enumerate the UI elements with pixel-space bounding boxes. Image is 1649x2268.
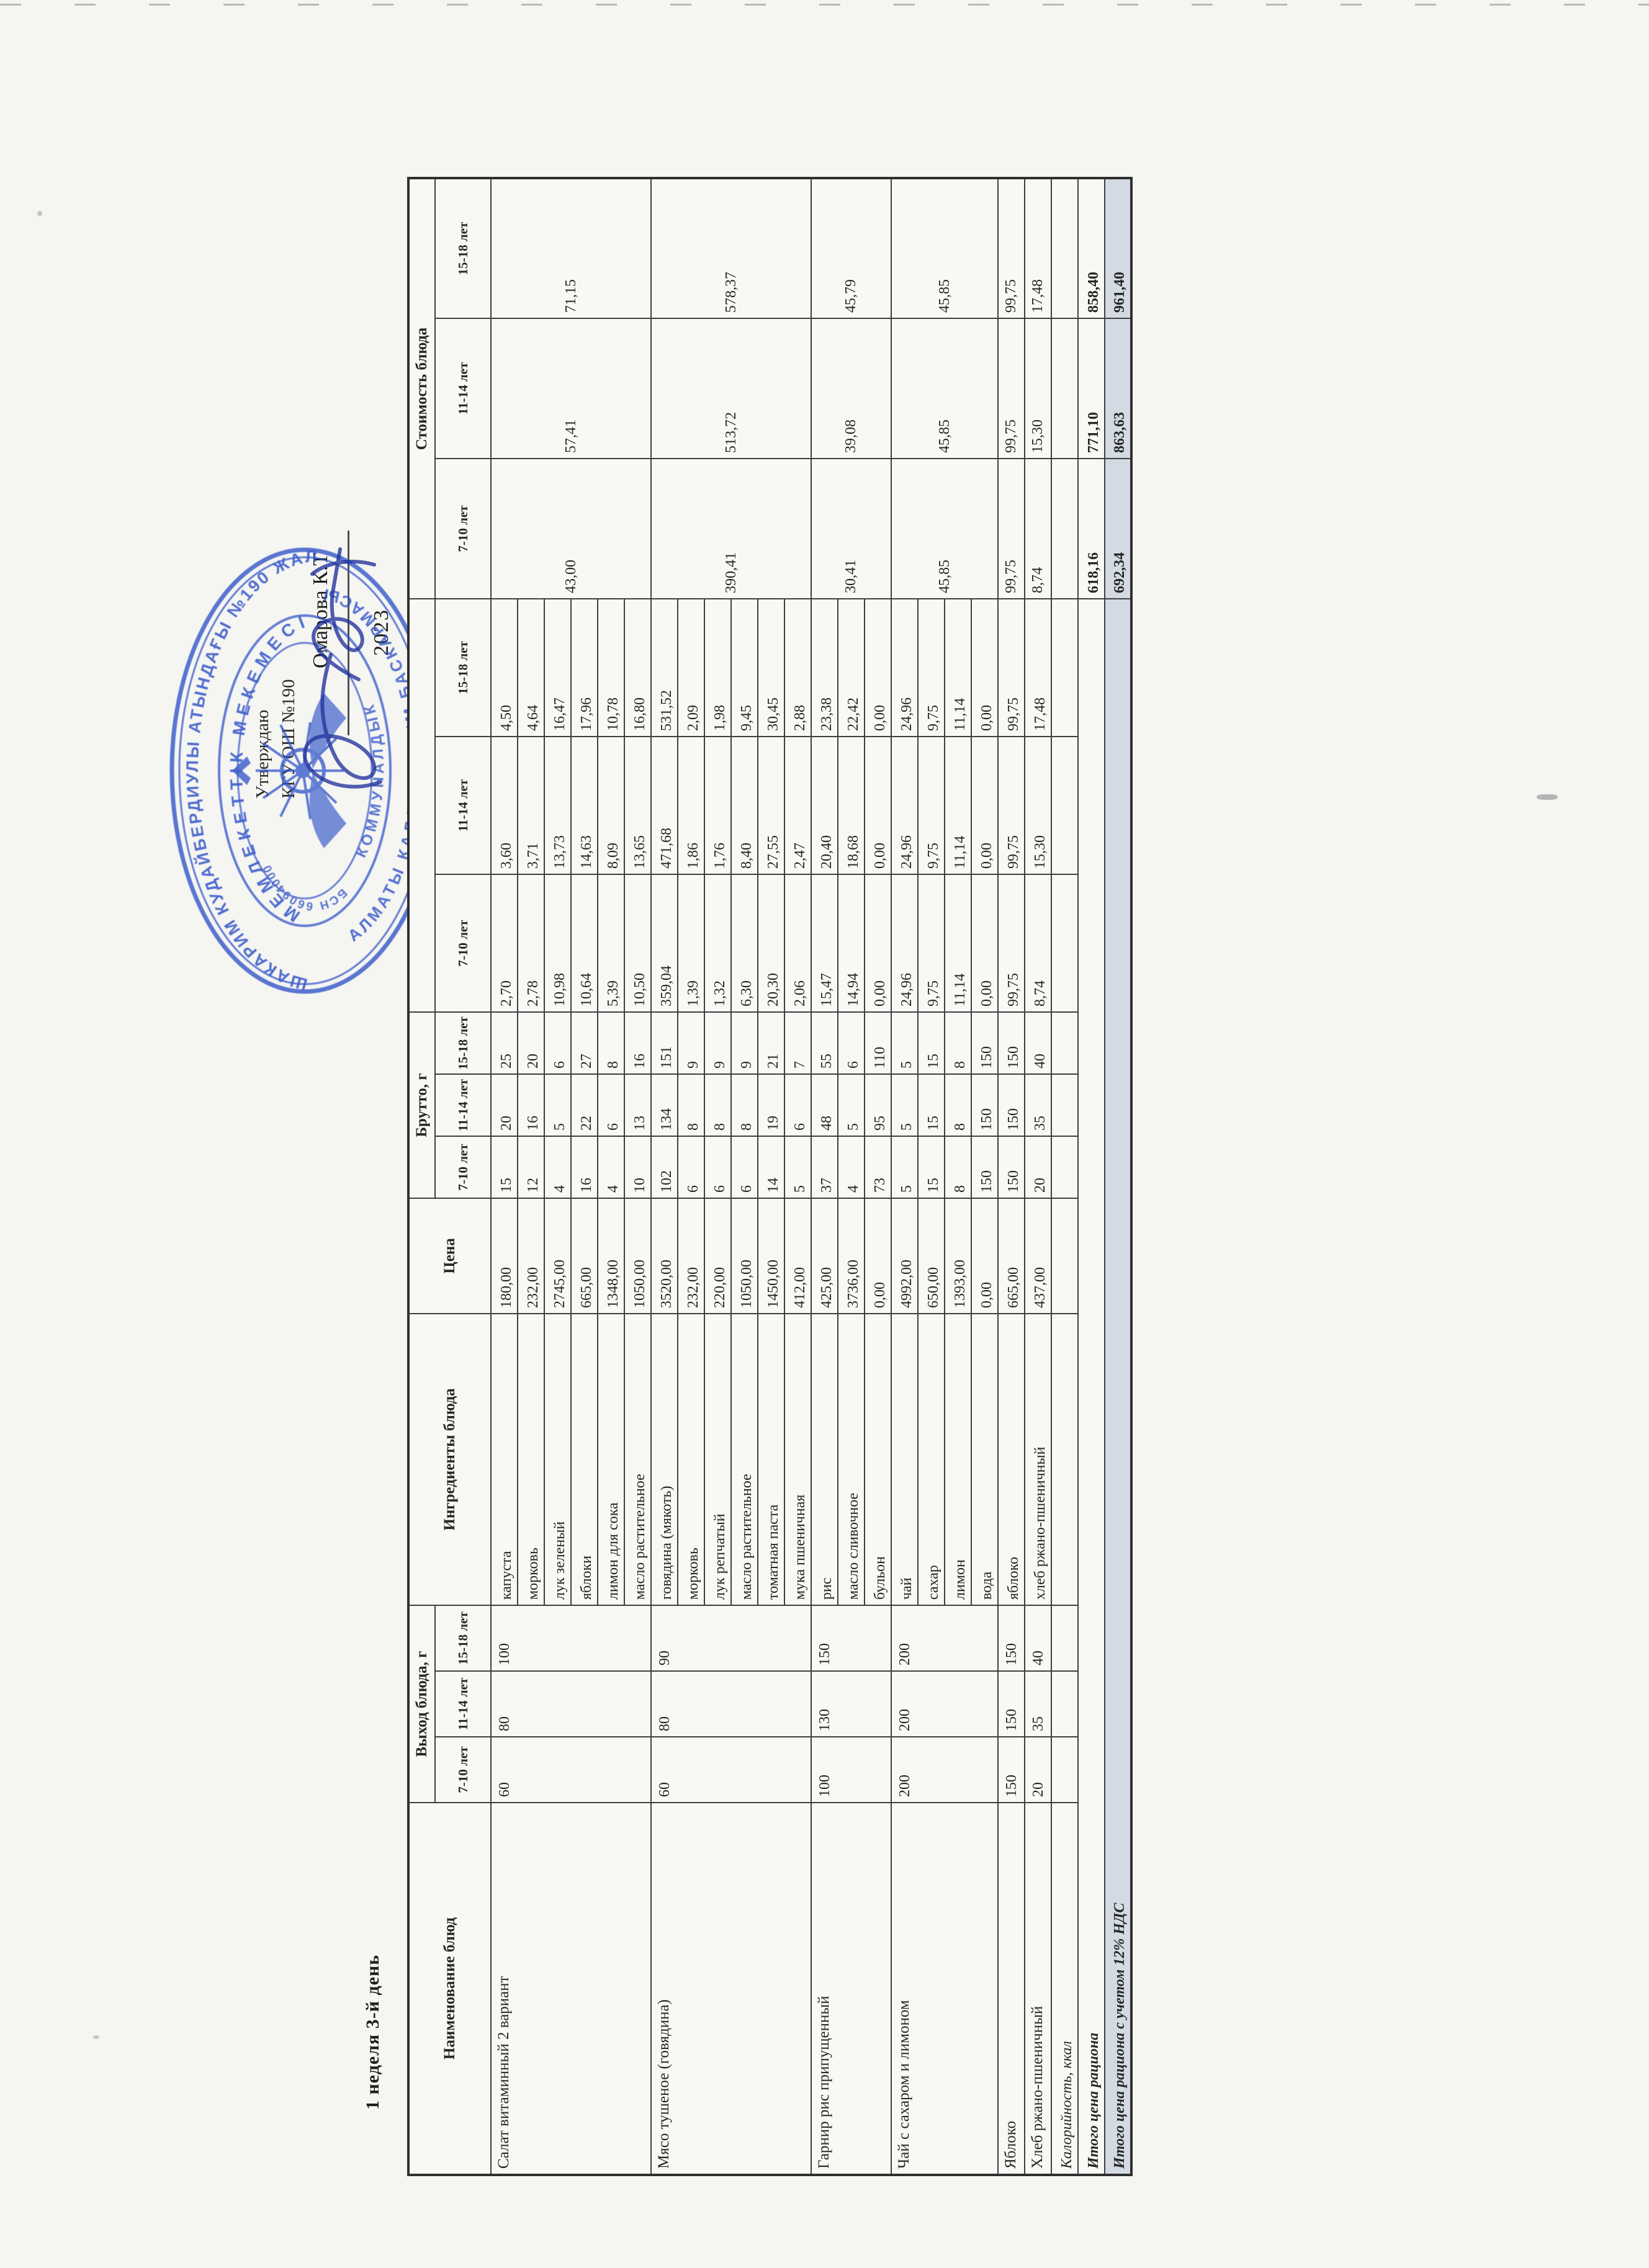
cost-value: 9,75 <box>918 599 945 737</box>
cost-value: 13,73 <box>544 737 571 874</box>
brutto-value: 20 <box>518 1012 544 1074</box>
ingredient-name: сахар <box>918 1314 945 1605</box>
brutto-value: 151 <box>651 1012 678 1074</box>
cost-value: 24,96 <box>891 874 918 1012</box>
cost-value: 20,40 <box>811 737 838 874</box>
dish-total-value: 45,85 <box>891 318 998 459</box>
dish-total-value: 57,41 <box>491 318 651 459</box>
cost-value: 11,14 <box>945 874 971 1012</box>
price-value: 2745,00 <box>544 1198 571 1314</box>
empty-cell <box>1051 1671 1078 1737</box>
ingredient-name: мука пшеничная <box>784 1314 811 1605</box>
menu-table-rows: Салат витаминный 2 вариант6080100капуста… <box>491 178 1131 2175</box>
brutto-value: 20 <box>491 1074 518 1136</box>
age-header: 11-14 лет <box>435 737 491 874</box>
cost-value: 10,64 <box>571 874 598 1012</box>
brutto-value: 9 <box>678 1012 704 1074</box>
brutto-value: 8 <box>678 1074 704 1136</box>
vyhod-value: 150 <box>998 1671 1025 1737</box>
dish-total-value: 15,30 <box>1025 318 1051 459</box>
col-header-cost-group <box>408 599 435 1012</box>
brutto-value: 8 <box>945 1074 971 1136</box>
menu-table: Наименование блюд Выход блюда, г Ингреди… <box>407 177 1133 2176</box>
cost-value: 359,04 <box>651 874 678 1012</box>
brutto-value: 150 <box>971 1074 998 1136</box>
dish-name: Хлеб ржано-пшеничный <box>1025 1803 1051 2175</box>
cost-value: 11,14 <box>945 737 971 874</box>
cost-value: 531,52 <box>651 599 678 737</box>
cost-value: 9,45 <box>731 599 758 737</box>
cost-value: 0,00 <box>971 737 998 874</box>
empty-cell <box>1051 1012 1078 1074</box>
cost-value: 20,30 <box>758 874 784 1012</box>
brutto-value: 9 <box>704 1012 731 1074</box>
cost-value: 10,98 <box>544 874 571 1012</box>
brutto-value: 8 <box>598 1012 624 1074</box>
cost-value: 0,00 <box>971 599 998 737</box>
brutto-value: 5 <box>544 1074 571 1136</box>
brutto-value: 150 <box>998 1136 1025 1198</box>
age-header: 7-10 лет <box>435 1737 491 1803</box>
dish-total-value: 99,75 <box>998 459 1025 599</box>
cost-value: 23,38 <box>811 599 838 737</box>
cost-value: 2,88 <box>784 599 811 737</box>
vyhod-value: 100 <box>491 1605 651 1671</box>
age-header: 7-10 лет <box>435 1136 491 1198</box>
price-value: 3520,00 <box>651 1198 678 1314</box>
age-header: 11-14 лет <box>435 318 491 459</box>
vyhod-value: 150 <box>998 1737 1025 1803</box>
brutto-value: 27 <box>571 1012 598 1074</box>
brutto-value: 6 <box>731 1136 758 1198</box>
brutto-value: 8 <box>945 1012 971 1074</box>
age-header: 15-18 лет <box>435 1605 491 1671</box>
dish-total-value: 17,48 <box>1025 178 1051 318</box>
header-row-groups: Наименование блюд Выход блюда, г Ингреди… <box>408 178 435 2175</box>
dish-total-value: 513,72 <box>651 318 811 459</box>
empty-cell <box>1051 1074 1078 1136</box>
price-value: 1050,00 <box>624 1198 651 1314</box>
price-value: 665,00 <box>998 1198 1025 1314</box>
cost-value: 9,75 <box>918 737 945 874</box>
col-header-total-group: Стоимость блюда <box>408 178 435 599</box>
footer-row: Итого цена рациона с учетом 12% НДС692,3… <box>1105 178 1131 2175</box>
cost-value: 1,86 <box>678 737 704 874</box>
dish-total-value: 390,41 <box>651 459 811 599</box>
cost-value: 99,75 <box>998 874 1025 1012</box>
brutto-value: 15 <box>918 1136 945 1198</box>
cost-value: 4,64 <box>518 599 544 737</box>
price-value: 0,00 <box>971 1198 998 1314</box>
vyhod-value: 60 <box>651 1737 811 1803</box>
cost-value: 17,96 <box>571 599 598 737</box>
cost-value: 17,48 <box>1025 599 1051 737</box>
page-title: 1 неделя 3-й день <box>362 1955 384 2110</box>
brutto-value: 55 <box>811 1012 838 1074</box>
brutto-value: 102 <box>651 1136 678 1198</box>
brutto-value: 4 <box>598 1136 624 1198</box>
brutto-value: 21 <box>758 1012 784 1074</box>
empty-cell <box>1051 874 1078 1012</box>
footer-total-value: 863,63 <box>1105 318 1131 459</box>
age-header: 15-18 лет <box>435 599 491 737</box>
ingredient-name: хлеб ржано-пшеничный <box>1025 1314 1051 1605</box>
col-header-name: Наименование блюд <box>408 1803 491 2175</box>
dish-total-value: 99,75 <box>998 178 1025 318</box>
vyhod-value: 200 <box>891 1605 998 1671</box>
ingredient-name: лук репчатый <box>704 1314 731 1605</box>
dish-total-value: 30,41 <box>811 459 891 599</box>
vyhod-value: 130 <box>811 1671 891 1737</box>
cost-value: 11,14 <box>945 599 971 737</box>
brutto-value: 150 <box>971 1136 998 1198</box>
cost-value: 8,40 <box>731 737 758 874</box>
cost-value: 2,06 <box>784 874 811 1012</box>
price-value: 1393,00 <box>945 1198 971 1314</box>
cost-value: 2,70 <box>491 874 518 1012</box>
dish-total-value: 45,79 <box>811 178 891 318</box>
dish-total-value: 8,74 <box>1025 459 1051 599</box>
brutto-value: 8 <box>704 1074 731 1136</box>
cost-value: 24,96 <box>891 737 918 874</box>
brutto-value: 5 <box>891 1012 918 1074</box>
ingredient-row: Чай с сахаром и лимоном200200200чай4992,… <box>891 178 918 2175</box>
brutto-value: 37 <box>811 1136 838 1198</box>
age-header: 15-18 лет <box>435 1012 491 1074</box>
rotated-sheet: 1 неделя 3-й день Утверждаю КГУ ОШ №190 … <box>0 0 1649 2268</box>
cost-value: 0,00 <box>971 874 998 1012</box>
cost-value: 0,00 <box>865 599 891 737</box>
brutto-value: 19 <box>758 1074 784 1136</box>
cost-value: 1,32 <box>704 874 731 1012</box>
vyhod-value: 100 <box>811 1737 891 1803</box>
footer-total-value: 771,10 <box>1078 318 1105 459</box>
cost-value: 15,47 <box>811 874 838 1012</box>
brutto-value: 5 <box>784 1136 811 1198</box>
ingredient-name: масло сливочное <box>838 1314 865 1605</box>
ingredient-name: масло растительное <box>624 1314 651 1605</box>
cost-value: 1,76 <box>704 737 731 874</box>
footer-total-value: 692,34 <box>1105 459 1131 599</box>
cost-value: 471,68 <box>651 737 678 874</box>
brutto-value: 48 <box>811 1074 838 1136</box>
empty-cell <box>1051 1136 1078 1198</box>
cost-value: 3,60 <box>491 737 518 874</box>
cost-value: 13,65 <box>624 737 651 874</box>
cost-value: 1,98 <box>704 599 731 737</box>
ingredient-name: вода <box>971 1314 998 1605</box>
dish-name: Салат витаминный 2 вариант <box>491 1803 651 2175</box>
cost-value: 8,09 <box>598 737 624 874</box>
vyhod-value: 80 <box>651 1671 811 1737</box>
brutto-value: 6 <box>598 1074 624 1136</box>
dish-total-value: 99,75 <box>998 318 1025 459</box>
cost-value: 9,75 <box>918 874 945 1012</box>
price-value: 1450,00 <box>758 1198 784 1314</box>
dish-name: Мясо тушеное (говядина) <box>651 1803 811 2175</box>
brutto-value: 16 <box>571 1136 598 1198</box>
age-header: 7-10 лет <box>435 459 491 599</box>
vyhod-value: 90 <box>651 1605 811 1671</box>
footer-label: Итого цена рациона с учетом 12% НДС <box>1105 599 1131 2175</box>
cost-value: 8,74 <box>1025 874 1051 1012</box>
ingredient-name: яблоко <box>998 1314 1025 1605</box>
footer-label: Итого цена рациона <box>1078 599 1105 2175</box>
brutto-value: 14 <box>758 1136 784 1198</box>
cost-value: 27,55 <box>758 737 784 874</box>
brutto-value: 22 <box>571 1074 598 1136</box>
ingredient-name: рис <box>811 1314 838 1605</box>
footer-total-value: 618,16 <box>1078 459 1105 599</box>
ingredient-row: Хлеб ржано-пшеничный203540хлеб ржано-пше… <box>1025 178 1051 2175</box>
ingredient-row: Яблоко150150150яблоко665,0015015015099,7… <box>998 178 1025 2175</box>
price-value: 437,00 <box>1025 1198 1051 1314</box>
cost-value: 14,63 <box>571 737 598 874</box>
col-header-vyhod-group: Выход блюда, г <box>408 1605 435 1803</box>
cost-value: 10,78 <box>598 599 624 737</box>
ingredient-name: яблоки <box>571 1314 598 1605</box>
ingredient-name: масло растительное <box>731 1314 758 1605</box>
ingredient-name: лук зеленый <box>544 1314 571 1605</box>
ingredient-name: лимон <box>945 1314 971 1605</box>
cost-value: 14,94 <box>838 874 865 1012</box>
price-value: 232,00 <box>678 1198 704 1314</box>
brutto-value: 35 <box>1025 1074 1051 1136</box>
vyhod-value: 35 <box>1025 1671 1051 1737</box>
cost-value: 24,96 <box>891 599 918 737</box>
ingredient-row: Салат витаминный 2 вариант6080100капуста… <box>491 178 518 2175</box>
cost-value: 3,71 <box>518 737 544 874</box>
ingredient-name: лимон для сока <box>598 1314 624 1605</box>
footer-total-value <box>1051 459 1078 599</box>
ingredient-row: Мясо тушеное (говядина)608090говядина (м… <box>651 178 678 2175</box>
footer-total-value <box>1051 318 1078 459</box>
vyhod-value: 60 <box>491 1737 651 1803</box>
footer-total-value: 858,40 <box>1078 178 1105 318</box>
brutto-value: 8 <box>731 1074 758 1136</box>
price-value: 0,00 <box>865 1198 891 1314</box>
brutto-value: 95 <box>865 1074 891 1136</box>
col-header-brutto-group: Брутто, г <box>408 1012 435 1198</box>
vyhod-value: 80 <box>491 1671 651 1737</box>
dish-name: Яблоко <box>998 1803 1025 2175</box>
brutto-value: 12 <box>518 1136 544 1198</box>
brutto-value: 110 <box>865 1012 891 1074</box>
brutto-value: 6 <box>838 1012 865 1074</box>
cost-value: 15,30 <box>1025 737 1051 874</box>
brutto-value: 25 <box>491 1012 518 1074</box>
brutto-value: 13 <box>624 1074 651 1136</box>
cost-value: 2,09 <box>678 599 704 737</box>
scanned-menu-document: { "page": { "title": "1 неделя 3-й день"… <box>0 0 1649 2268</box>
brutto-value: 6 <box>704 1136 731 1198</box>
price-value: 1348,00 <box>598 1198 624 1314</box>
ingredient-name: морковь <box>678 1314 704 1605</box>
cost-value: 5,39 <box>598 874 624 1012</box>
brutto-value: 150 <box>998 1012 1025 1074</box>
brutto-value: 15 <box>491 1136 518 1198</box>
dish-total-value: 71,15 <box>491 178 651 318</box>
cost-value: 30,45 <box>758 599 784 737</box>
age-header: 15-18 лет <box>435 178 491 318</box>
price-value: 232,00 <box>518 1198 544 1314</box>
cost-value: 2,78 <box>518 874 544 1012</box>
dish-name: Чай с сахаром и лимоном <box>891 1803 998 2175</box>
age-header: 11-14 лет <box>435 1074 491 1136</box>
cost-value: 99,75 <box>998 599 1025 737</box>
ingredient-name: морковь <box>518 1314 544 1605</box>
col-header-price: Цена <box>408 1198 491 1314</box>
brutto-value: 16 <box>518 1074 544 1136</box>
brutto-value: 7 <box>784 1012 811 1074</box>
dish-total-value: 43,00 <box>491 459 651 599</box>
footer-row: Итого цена рациона618,16771,10858,40 <box>1078 178 1105 2175</box>
brutto-value: 6 <box>678 1136 704 1198</box>
ingredient-name: чай <box>891 1314 918 1605</box>
cost-value: 16,47 <box>544 599 571 737</box>
brutto-value: 4 <box>838 1136 865 1198</box>
ingredient-name: говядина (мякоть) <box>651 1314 678 1605</box>
dish-name: Гарнир рис припущенный <box>811 1803 891 2175</box>
price-value: 650,00 <box>918 1198 945 1314</box>
ingredient-row: Гарнир рис припущенный100130150рис425,00… <box>811 178 838 2175</box>
dish-total-value: 45,85 <box>891 459 998 599</box>
price-value: 665,00 <box>571 1198 598 1314</box>
empty-cell <box>1051 1605 1078 1671</box>
brutto-value: 6 <box>544 1012 571 1074</box>
dish-total-value: 45,85 <box>891 178 998 318</box>
brutto-value: 20 <box>1025 1136 1051 1198</box>
cost-value: 4,50 <box>491 599 518 737</box>
cost-value: 2,47 <box>784 737 811 874</box>
age-header: 11-14 лет <box>435 1671 491 1737</box>
col-header-ingredients: Ингредиенты блюда <box>408 1314 491 1605</box>
brutto-value: 15 <box>918 1012 945 1074</box>
brutto-value: 16 <box>624 1012 651 1074</box>
footer-row: Калорийность, ккал <box>1051 178 1078 2175</box>
stamp-bin-text: БСН 660940000038 <box>156 862 349 1010</box>
vyhod-value: 150 <box>998 1605 1025 1671</box>
brutto-value: 9 <box>731 1012 758 1074</box>
brutto-value: 40 <box>1025 1012 1051 1074</box>
ingredient-name: капуста <box>491 1314 518 1605</box>
cost-value: 10,50 <box>624 874 651 1012</box>
brutto-value: 10 <box>624 1136 651 1198</box>
brutto-value: 5 <box>838 1074 865 1136</box>
price-value: 412,00 <box>784 1198 811 1314</box>
cost-value: 1,39 <box>678 874 704 1012</box>
svg-text:БСН 660940000038: БСН 660940000038 <box>156 862 349 1010</box>
age-header: 7-10 лет <box>435 874 491 1012</box>
brutto-value: 73 <box>865 1136 891 1198</box>
vyhod-value: 200 <box>891 1671 998 1737</box>
price-value: 180,00 <box>491 1198 518 1314</box>
dish-total-value: 39,08 <box>811 318 891 459</box>
brutto-value: 150 <box>998 1074 1025 1136</box>
brutto-value: 4 <box>544 1136 571 1198</box>
price-value: 1050,00 <box>731 1198 758 1314</box>
dish-total-value: 578,37 <box>651 178 811 318</box>
ingredient-name: томатная паста <box>758 1314 784 1605</box>
empty-cell <box>1051 1314 1078 1605</box>
cost-value: 18,68 <box>838 737 865 874</box>
footer-total-value: 961,40 <box>1105 178 1131 318</box>
brutto-value: 8 <box>945 1136 971 1198</box>
cost-value: 0,00 <box>865 874 891 1012</box>
brutto-value: 134 <box>651 1074 678 1136</box>
cost-value: 16,80 <box>624 599 651 737</box>
price-value: 4992,00 <box>891 1198 918 1314</box>
brutto-value: 5 <box>891 1074 918 1136</box>
cost-value: 22,42 <box>838 599 865 737</box>
vyhod-value: 150 <box>811 1605 891 1671</box>
vyhod-value: 200 <box>891 1737 998 1803</box>
brutto-value: 15 <box>918 1074 945 1136</box>
empty-cell <box>1051 599 1078 737</box>
brutto-value: 150 <box>971 1012 998 1074</box>
ingredient-name: бульон <box>865 1314 891 1605</box>
price-value: 3736,00 <box>838 1198 865 1314</box>
cost-value: 0,00 <box>865 737 891 874</box>
menu-table-wrap: Наименование блюд Выход блюда, г Ингреди… <box>407 177 1133 2176</box>
empty-cell <box>1051 1737 1078 1803</box>
footer-label: Калорийность, ккал <box>1051 1803 1078 2175</box>
vyhod-value: 40 <box>1025 1605 1051 1671</box>
price-value: 425,00 <box>811 1198 838 1314</box>
brutto-value: 5 <box>891 1136 918 1198</box>
cost-value: 99,75 <box>998 737 1025 874</box>
footer-total-value <box>1051 178 1078 318</box>
price-value: 220,00 <box>704 1198 731 1314</box>
empty-cell <box>1051 1198 1078 1314</box>
empty-cell <box>1051 737 1078 874</box>
vyhod-value: 20 <box>1025 1737 1051 1803</box>
brutto-value: 6 <box>784 1074 811 1136</box>
cost-value: 6,30 <box>731 874 758 1012</box>
